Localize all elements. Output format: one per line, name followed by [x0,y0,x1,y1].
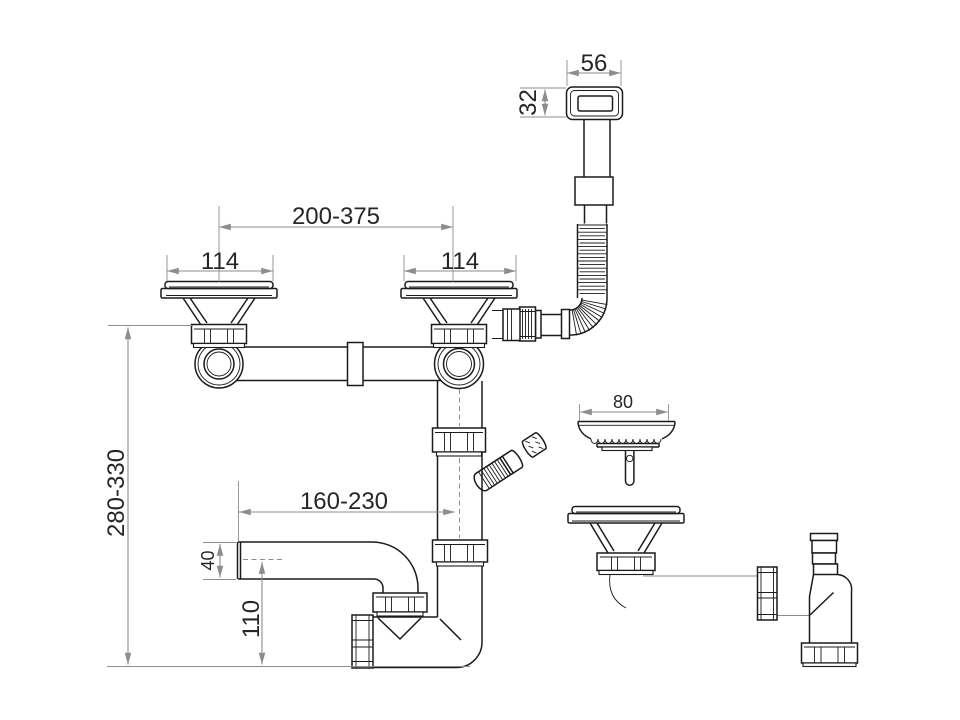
side-trap-swivel-stub [811,534,838,575]
overflow-head [567,87,623,224]
right-drain-strainer [401,282,517,348]
overflow-hose-nut [520,307,536,341]
basket-stem-ball [627,455,633,461]
dim-overflow-width: 56 [567,50,621,86]
dim-basket-diameter: 80 [580,392,669,421]
dim-outlet-pipe-diameter-label: 40 [198,550,218,570]
waste-pipe-upper-nut [433,428,486,456]
dim-outlet-centerline-height: 110 [238,562,265,665]
side-trap-inlet-nut [758,567,778,620]
bottom-trap-junction [352,593,482,668]
junction-inlet-nut [373,593,427,616]
centerlines [243,389,460,560]
junction-outlet-nut [352,615,373,668]
dim-right-drain-flange: 114 [404,248,516,281]
dim-drain-spacing-label: 200-375 [292,203,380,230]
waste-pipe-lower-nut [433,540,488,566]
center-drain-strainer [568,507,684,609]
basket-strainer [578,422,675,486]
dim-outlet-centerline-height-label: 110 [238,600,265,638]
side-trap-assembly [643,534,858,667]
dim-drain-spacing: 200-375 [219,203,453,282]
dim-basket-diameter-label: 80 [613,392,633,412]
dim-overflow-height-label: 32 [515,89,542,116]
dim-outlet-pipe-diameter: 40 [198,543,236,580]
dim-overflow-height: 32 [515,88,566,117]
left-drain-strainer [161,282,277,348]
dim-outlet-offset-label: 160-230 [300,488,388,515]
dim-outlet-offset: 160-230 [239,481,456,541]
dim-left-drain-flange: 114 [167,248,273,281]
dim-overflow-width-label: 56 [581,50,608,77]
technical-drawing-canvas: 56 32 200-375 114 114 280-330 160-230 40 [0,0,960,720]
dishwasher-branch-cap [521,432,548,459]
dim-installation-height-label: 280-330 [103,449,130,537]
sink-drain-kit-drawing: 56 32 200-375 114 114 280-330 160-230 40 [0,0,960,720]
wall-outlet-pipe [238,542,419,593]
side-trap-bottom-nut [802,643,858,667]
dim-left-drain-flange-label: 114 [201,248,239,275]
strainer-leader-curve [610,575,626,609]
dim-right-drain-flange-label: 114 [441,248,479,275]
strainer-overflow-port [492,309,520,341]
pipe-coupling-sleeve [348,343,364,386]
bowl-connecting-pipe [221,347,457,381]
